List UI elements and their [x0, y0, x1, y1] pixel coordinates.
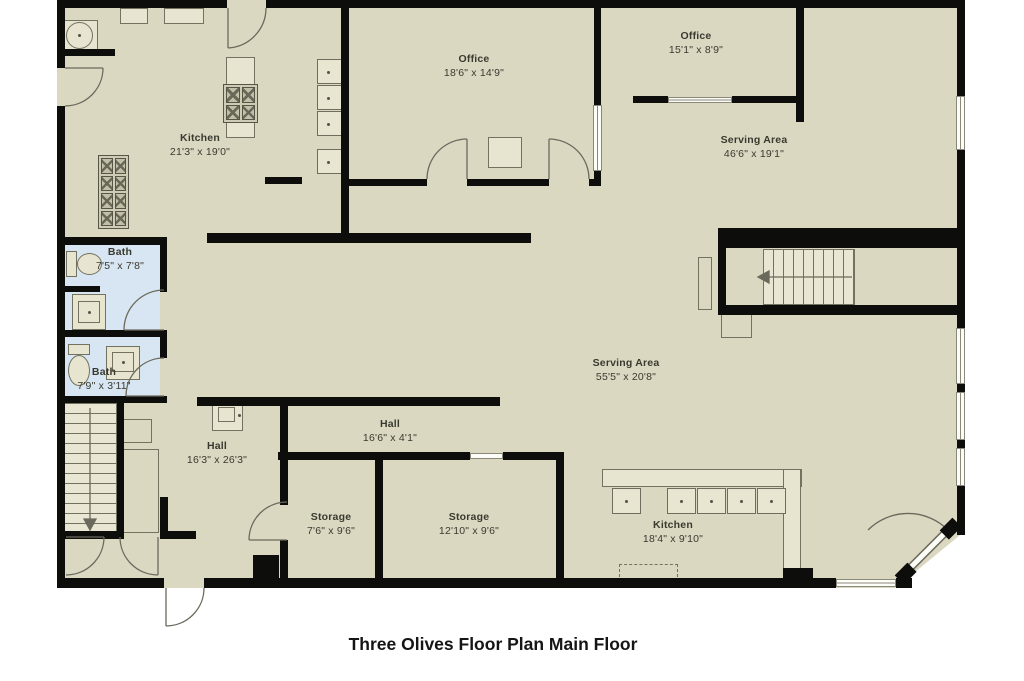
wall	[57, 49, 115, 56]
wall	[957, 440, 965, 448]
room-dims: 16'6" x 4'1"	[363, 432, 417, 446]
floor-plan-page: Kitchen 21'3" x 19'0" Office 18'6" x 14'…	[0, 0, 1024, 681]
window	[956, 448, 965, 486]
sink-unit	[317, 85, 343, 110]
room-dims: 18'6" x 14'9"	[444, 67, 504, 81]
wall	[160, 531, 196, 539]
counter	[120, 8, 148, 24]
room-name: Bath	[96, 246, 144, 260]
wall	[57, 0, 65, 68]
hall-sink-basin	[218, 407, 235, 422]
cabinet	[698, 257, 712, 310]
wall	[783, 568, 813, 580]
window	[956, 392, 965, 440]
wall	[732, 96, 796, 103]
room-name: Storage	[307, 511, 355, 525]
room-dims: 7'6" x 9'6"	[307, 525, 355, 539]
window	[593, 105, 602, 171]
room-name: Serving Area	[721, 134, 788, 148]
sink-unit	[612, 488, 641, 514]
wall	[633, 96, 668, 103]
staircase-left	[64, 403, 117, 533]
sink-drain-dot	[88, 311, 91, 314]
room-name: Serving Area	[593, 357, 660, 371]
room-dims: 21'3" x 19'0"	[170, 146, 230, 160]
room-dims: 7'5" x 7'8"	[96, 260, 144, 274]
floor-plan: Kitchen 21'3" x 19'0" Office 18'6" x 14'…	[0, 0, 1024, 681]
wall	[197, 397, 500, 406]
counter	[164, 8, 204, 24]
room-label-hall-main: Hall 16'3" x 26'3"	[187, 440, 247, 467]
room-label-serving-main: Serving Area 55'5" x 20'8"	[593, 357, 660, 384]
toilet-tank	[66, 251, 77, 277]
office-floor-box	[488, 137, 522, 168]
room-label-kitchen-main: Kitchen 21'3" x 19'0"	[170, 132, 230, 159]
wall	[57, 578, 164, 588]
room-dims: 16'3" x 26'3"	[187, 454, 247, 468]
wall	[64, 286, 100, 292]
wall	[957, 0, 965, 96]
room-label-bath-small: Bath 7'9" x 3'11"	[77, 366, 130, 393]
room-dims: 55'5" x 20'8"	[593, 371, 660, 385]
room-name: Hall	[363, 418, 417, 432]
sink-drain-dot	[238, 414, 241, 417]
wall	[375, 452, 383, 578]
wall	[57, 106, 65, 588]
wall	[204, 578, 836, 588]
wall	[253, 555, 279, 578]
room-label-kitchen-lower: Kitchen 18'4" x 9'10"	[643, 519, 703, 546]
sink-unit	[727, 488, 756, 514]
room-dims: 7'9" x 3'11"	[77, 380, 130, 394]
wall	[467, 179, 549, 186]
wall	[718, 228, 726, 315]
room-dims: 12'10" x 9'6"	[439, 525, 499, 539]
room-label-office-small: Office 15'1" x 8'9"	[669, 30, 723, 57]
room-name: Hall	[187, 440, 247, 454]
wall	[341, 0, 349, 243]
wall	[280, 540, 288, 578]
staircase-right	[763, 249, 855, 305]
room-label-office-large: Office 18'6" x 14'9"	[444, 53, 504, 80]
sink-drain-dot	[78, 34, 81, 37]
plan-title: Three Olives Floor Plan Main Floor	[349, 634, 638, 655]
wall	[503, 452, 563, 460]
window	[836, 579, 896, 587]
wall	[341, 179, 427, 186]
room-name: Storage	[439, 511, 499, 525]
wall	[796, 0, 804, 122]
room-dims: 18'4" x 9'10"	[643, 533, 703, 547]
window	[668, 97, 732, 103]
wall	[117, 402, 124, 534]
sink-unit	[317, 59, 343, 84]
door-swing	[166, 588, 204, 626]
wall	[265, 177, 302, 184]
wall	[280, 397, 288, 460]
room-label-bath-large: Bath 7'5" x 7'8"	[96, 246, 144, 273]
sink-unit	[667, 488, 696, 514]
closet	[122, 449, 159, 533]
room-name: Office	[444, 53, 504, 67]
sink-unit	[317, 149, 343, 174]
wall	[594, 171, 601, 186]
wall	[718, 305, 965, 315]
wall	[718, 228, 965, 248]
room-name: Kitchen	[170, 132, 230, 146]
sink-unit	[697, 488, 726, 514]
cabinet	[123, 419, 152, 443]
room-dims: 46'6" x 19'1"	[721, 148, 788, 162]
kitchen-counter	[602, 469, 802, 487]
cabinet	[721, 311, 752, 338]
stove-island	[223, 84, 258, 123]
wall	[57, 0, 227, 8]
wall	[278, 452, 470, 460]
room-name: Office	[669, 30, 723, 44]
wall	[957, 486, 965, 535]
wall	[160, 237, 167, 292]
wall	[57, 396, 167, 403]
kitchen-counter	[783, 469, 801, 570]
wall	[957, 384, 965, 392]
toilet-tank	[68, 344, 90, 355]
wall	[594, 0, 601, 105]
room-name: Kitchen	[643, 519, 703, 533]
wall	[266, 0, 965, 8]
room-label-storage-large: Storage 12'10" x 9'6"	[439, 511, 499, 538]
wall	[280, 460, 288, 505]
window	[956, 96, 965, 150]
wall	[896, 578, 912, 588]
room-name: Bath	[77, 366, 130, 380]
sink-unit	[757, 488, 786, 514]
sink-drain-dot	[122, 361, 125, 364]
room-label-hall-narrow: Hall 16'6" x 4'1"	[363, 418, 417, 445]
wall	[207, 233, 531, 243]
room-label-serving-upper: Serving Area 46'6" x 19'1"	[721, 134, 788, 161]
sink-unit	[317, 111, 343, 136]
room-dims: 15'1" x 8'9"	[669, 44, 723, 58]
wall	[160, 330, 167, 358]
door-slab	[470, 453, 503, 459]
window	[956, 328, 965, 384]
wall	[57, 330, 167, 337]
wall	[57, 237, 165, 245]
stove-range	[98, 155, 129, 229]
wall	[64, 531, 124, 539]
wall	[556, 452, 564, 578]
room-label-storage-small: Storage 7'6" x 9'6"	[307, 511, 355, 538]
